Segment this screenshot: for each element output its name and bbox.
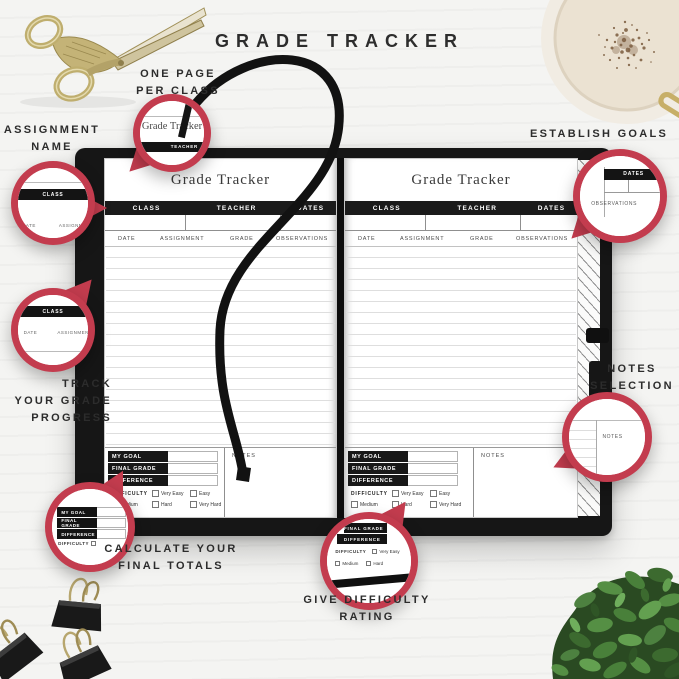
annotation-establish-goals: ESTABLISH GOALS — [530, 126, 679, 143]
notes-label: NOTES — [232, 453, 256, 459]
product-image: GRADE TRACKER — [0, 0, 679, 679]
class-teacher-dates-bar: CLASS TEACHER DATES — [345, 201, 577, 215]
checkbox-hard: Hard — [152, 501, 190, 508]
magnifier-lens: NOTES — [569, 399, 645, 475]
coffee-cup-icon — [529, 0, 679, 125]
dates-label: DATES — [285, 205, 336, 212]
teacher-label: TEACHER — [188, 205, 285, 212]
annotation-difficulty-rating: GIVE DIFFICULTY RATING — [281, 592, 453, 626]
col-grade: GRADE — [470, 236, 516, 242]
final-grade-row: FINAL GRADE — [108, 463, 224, 474]
teacher-label: TEACHER — [429, 205, 526, 212]
header-fill-cells — [105, 215, 336, 231]
checkbox-icon — [430, 501, 437, 508]
checkbox-icon — [430, 490, 437, 497]
callout-notes-selection: NOTES — [562, 392, 652, 482]
notebook-gutter — [337, 158, 344, 518]
notebook-page-right: Grade Tracker CLASS TEACHER DATES DATE A… — [344, 158, 578, 518]
annotation-notes-selection: NOTES SELECTION — [585, 361, 679, 395]
checkbox-very-easy: Very Easy — [152, 490, 190, 497]
ruled-lines — [346, 247, 576, 447]
summary-section: MY GOAL FINAL GRADE DIFFERENCE DIFFICULT… — [345, 447, 577, 517]
notes-label: NOTES — [481, 453, 505, 459]
my-goal-row: MY GOAL — [108, 451, 224, 462]
magnifier-lens: CLASS DATE ASSIGNMENT — [18, 295, 88, 365]
checkbox-icon — [392, 490, 399, 497]
checkbox-very-easy: Very Easy — [392, 490, 430, 497]
checkbox-icon — [190, 490, 197, 497]
col-assignment: ASSIGNMENT — [400, 236, 470, 242]
binder-clips-icon — [0, 559, 150, 679]
my-goal-row: MY GOAL — [348, 451, 473, 462]
magnifier-lens: DATES OBSERVATIONS — [580, 156, 660, 236]
magnifier-lens: Grade Tracker TEACHER — [140, 101, 204, 165]
checkbox-medium: Medium — [351, 501, 392, 508]
col-observations: OBSERVATIONS — [516, 236, 577, 242]
final-grade-row: FINAL GRADE — [348, 463, 473, 474]
class-teacher-dates-bar: CLASS TEACHER DATES — [105, 201, 336, 215]
notebook-edge-through-lens — [327, 572, 411, 588]
checkbox-icon — [152, 501, 159, 508]
page-heading: Grade Tracker — [345, 172, 577, 189]
col-date: DATE — [105, 236, 160, 242]
annotation-calculate-totals: CALCULATE YOUR FINAL TOTALS — [100, 541, 242, 575]
checkbox-icon — [351, 501, 358, 508]
page-heading: Grade Tracker — [105, 172, 336, 189]
checkbox-icon — [190, 501, 197, 508]
col-observations: OBSERVATIONS — [276, 236, 336, 242]
magnifier-lens: CLASS DATE ASSIGNMENT — [18, 168, 88, 238]
plant-icon — [515, 540, 679, 679]
column-headers: DATE ASSIGNMENT GRADE OBSERVATIONS — [345, 231, 577, 247]
class-label: CLASS — [105, 205, 188, 212]
callout-assignment-name-top: CLASS DATE ASSIGNMENT — [11, 161, 95, 245]
summary-section: MY GOAL FINAL GRADE DIFFERENCE DIFFICULT… — [105, 447, 336, 517]
header-fill-cells — [345, 215, 577, 231]
col-grade: GRADE — [230, 236, 276, 242]
checkbox-very-hard: Very Hard — [430, 501, 472, 508]
checkbox-icon — [152, 490, 159, 497]
annotation-track-progress: TRACK YOUR GRADE PROGRESS — [0, 376, 112, 427]
col-date: DATE — [345, 236, 400, 242]
callout-one-page-per-class: Grade Tracker TEACHER — [133, 94, 211, 172]
page-title: GRADE TRACKER — [0, 31, 679, 52]
annotation-assignment-name: ASSIGNMENT NAME — [0, 122, 104, 156]
pen-loop — [586, 328, 609, 343]
difficulty-rating: DIFFICULTY Very Easy Easy Medium Hard Ve… — [351, 490, 473, 508]
column-headers: DATE ASSIGNMENT GRADE OBSERVATIONS — [105, 231, 336, 247]
col-assignment: ASSIGNMENT — [160, 236, 230, 242]
callout-assignment-name-mid: CLASS DATE ASSIGNMENT — [11, 288, 95, 372]
ruled-lines — [106, 247, 335, 447]
notebook-page-left: Grade Tracker CLASS TEACHER DATES DATE A… — [104, 158, 337, 518]
class-label: CLASS — [345, 205, 429, 212]
callout-establish-goals: DATES OBSERVATIONS — [573, 149, 667, 243]
dates-label: DATES — [526, 205, 577, 212]
annotation-one-page-per-class: ONE PAGE PER CLASS — [120, 66, 236, 100]
difference-row: DIFFERENCE — [348, 475, 473, 486]
magnifier-lens: FINAL GRADE DIFFERENCE DIFFICULTY Very E… — [327, 519, 411, 603]
checkbox-easy: Easy — [430, 490, 472, 497]
notes-area: NOTES — [224, 448, 336, 517]
